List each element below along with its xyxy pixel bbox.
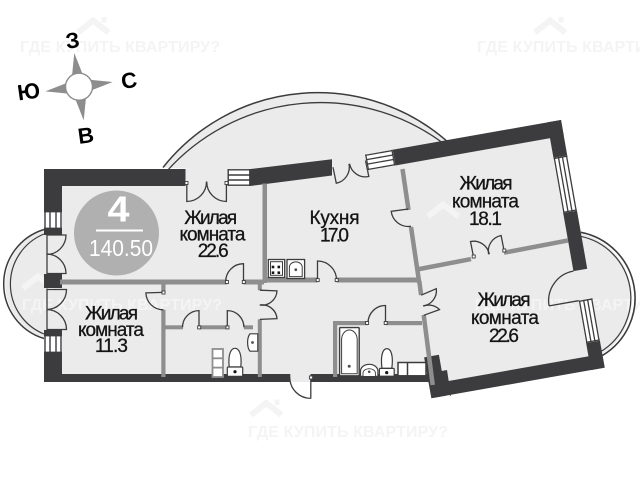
svg-text:22.6: 22.6 [198, 241, 229, 262]
svg-text:В: В [76, 122, 95, 149]
svg-text:22.6: 22.6 [489, 326, 519, 347]
svg-text:17.0: 17.0 [320, 226, 349, 247]
svg-text:11.3: 11.3 [95, 336, 128, 357]
svg-text:18.1: 18.1 [469, 209, 502, 230]
svg-text:140.50: 140.50 [89, 235, 153, 261]
svg-text:Ю: Ю [16, 78, 42, 106]
svg-text:ГДЕ КУПИТЬ КВАРТИРУ?: ГДЕ КУПИТЬ КВАРТИРУ? [20, 39, 220, 56]
svg-text:4: 4 [108, 189, 130, 230]
svg-text:ГДЕ КУПИТЬ КВАРТИРУ?: ГДЕ КУПИТЬ КВАРТИРУ? [477, 39, 640, 56]
svg-text:С: С [120, 67, 139, 94]
svg-text:ГДЕ КУПИТЬ КВАРТИРУ?: ГДЕ КУПИТЬ КВАРТИРУ? [248, 424, 448, 441]
